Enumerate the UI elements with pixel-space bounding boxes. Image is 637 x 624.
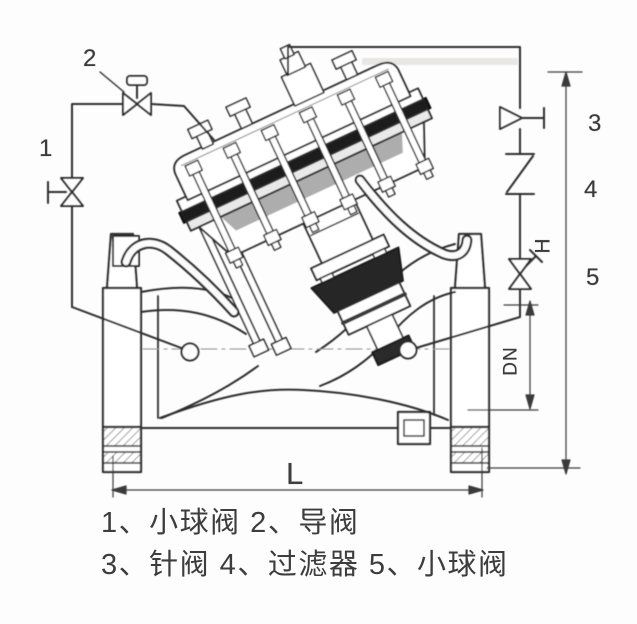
callout-1-label: 1	[39, 135, 52, 163]
right-tap-port	[400, 342, 417, 359]
ball-valve-1-symbol	[48, 178, 83, 206]
callout-2-leader	[100, 72, 124, 92]
length-dimension-label: L	[286, 456, 303, 492]
callout-5-label: 5	[586, 264, 599, 292]
pilot-valve-2-symbol	[123, 76, 151, 115]
height-dimension-label: H	[532, 238, 556, 253]
callout-4-label: 4	[584, 176, 597, 204]
diagram-canvas: 1 2 3 4 5 H DN L 1、小球阀 2、导阀 3、针阀 4、过滤器 5…	[0, 0, 637, 624]
parts-legend: 1、小球阀 2、导阀 3、针阀 4、过滤器 5、小球阀	[101, 502, 509, 586]
left-flange	[103, 288, 141, 427]
ball-valve-5-symbol	[509, 250, 542, 289]
callout-2-label: 2	[83, 45, 96, 73]
diameter-dimension-label: DN	[501, 346, 523, 375]
right-flange	[451, 288, 489, 427]
left-tap-port	[182, 344, 199, 361]
legend-line-2: 3、针阀 4、过滤器 5、小球阀	[101, 544, 509, 586]
needle-valve-3-symbol	[500, 107, 544, 129]
main-valve-body	[103, 234, 489, 472]
filter-4-symbol	[506, 154, 534, 194]
legend-line-1: 1、小球阀 2、导阀	[101, 502, 509, 544]
dim-line-H	[487, 72, 582, 474]
callout-3-label: 3	[588, 110, 601, 138]
